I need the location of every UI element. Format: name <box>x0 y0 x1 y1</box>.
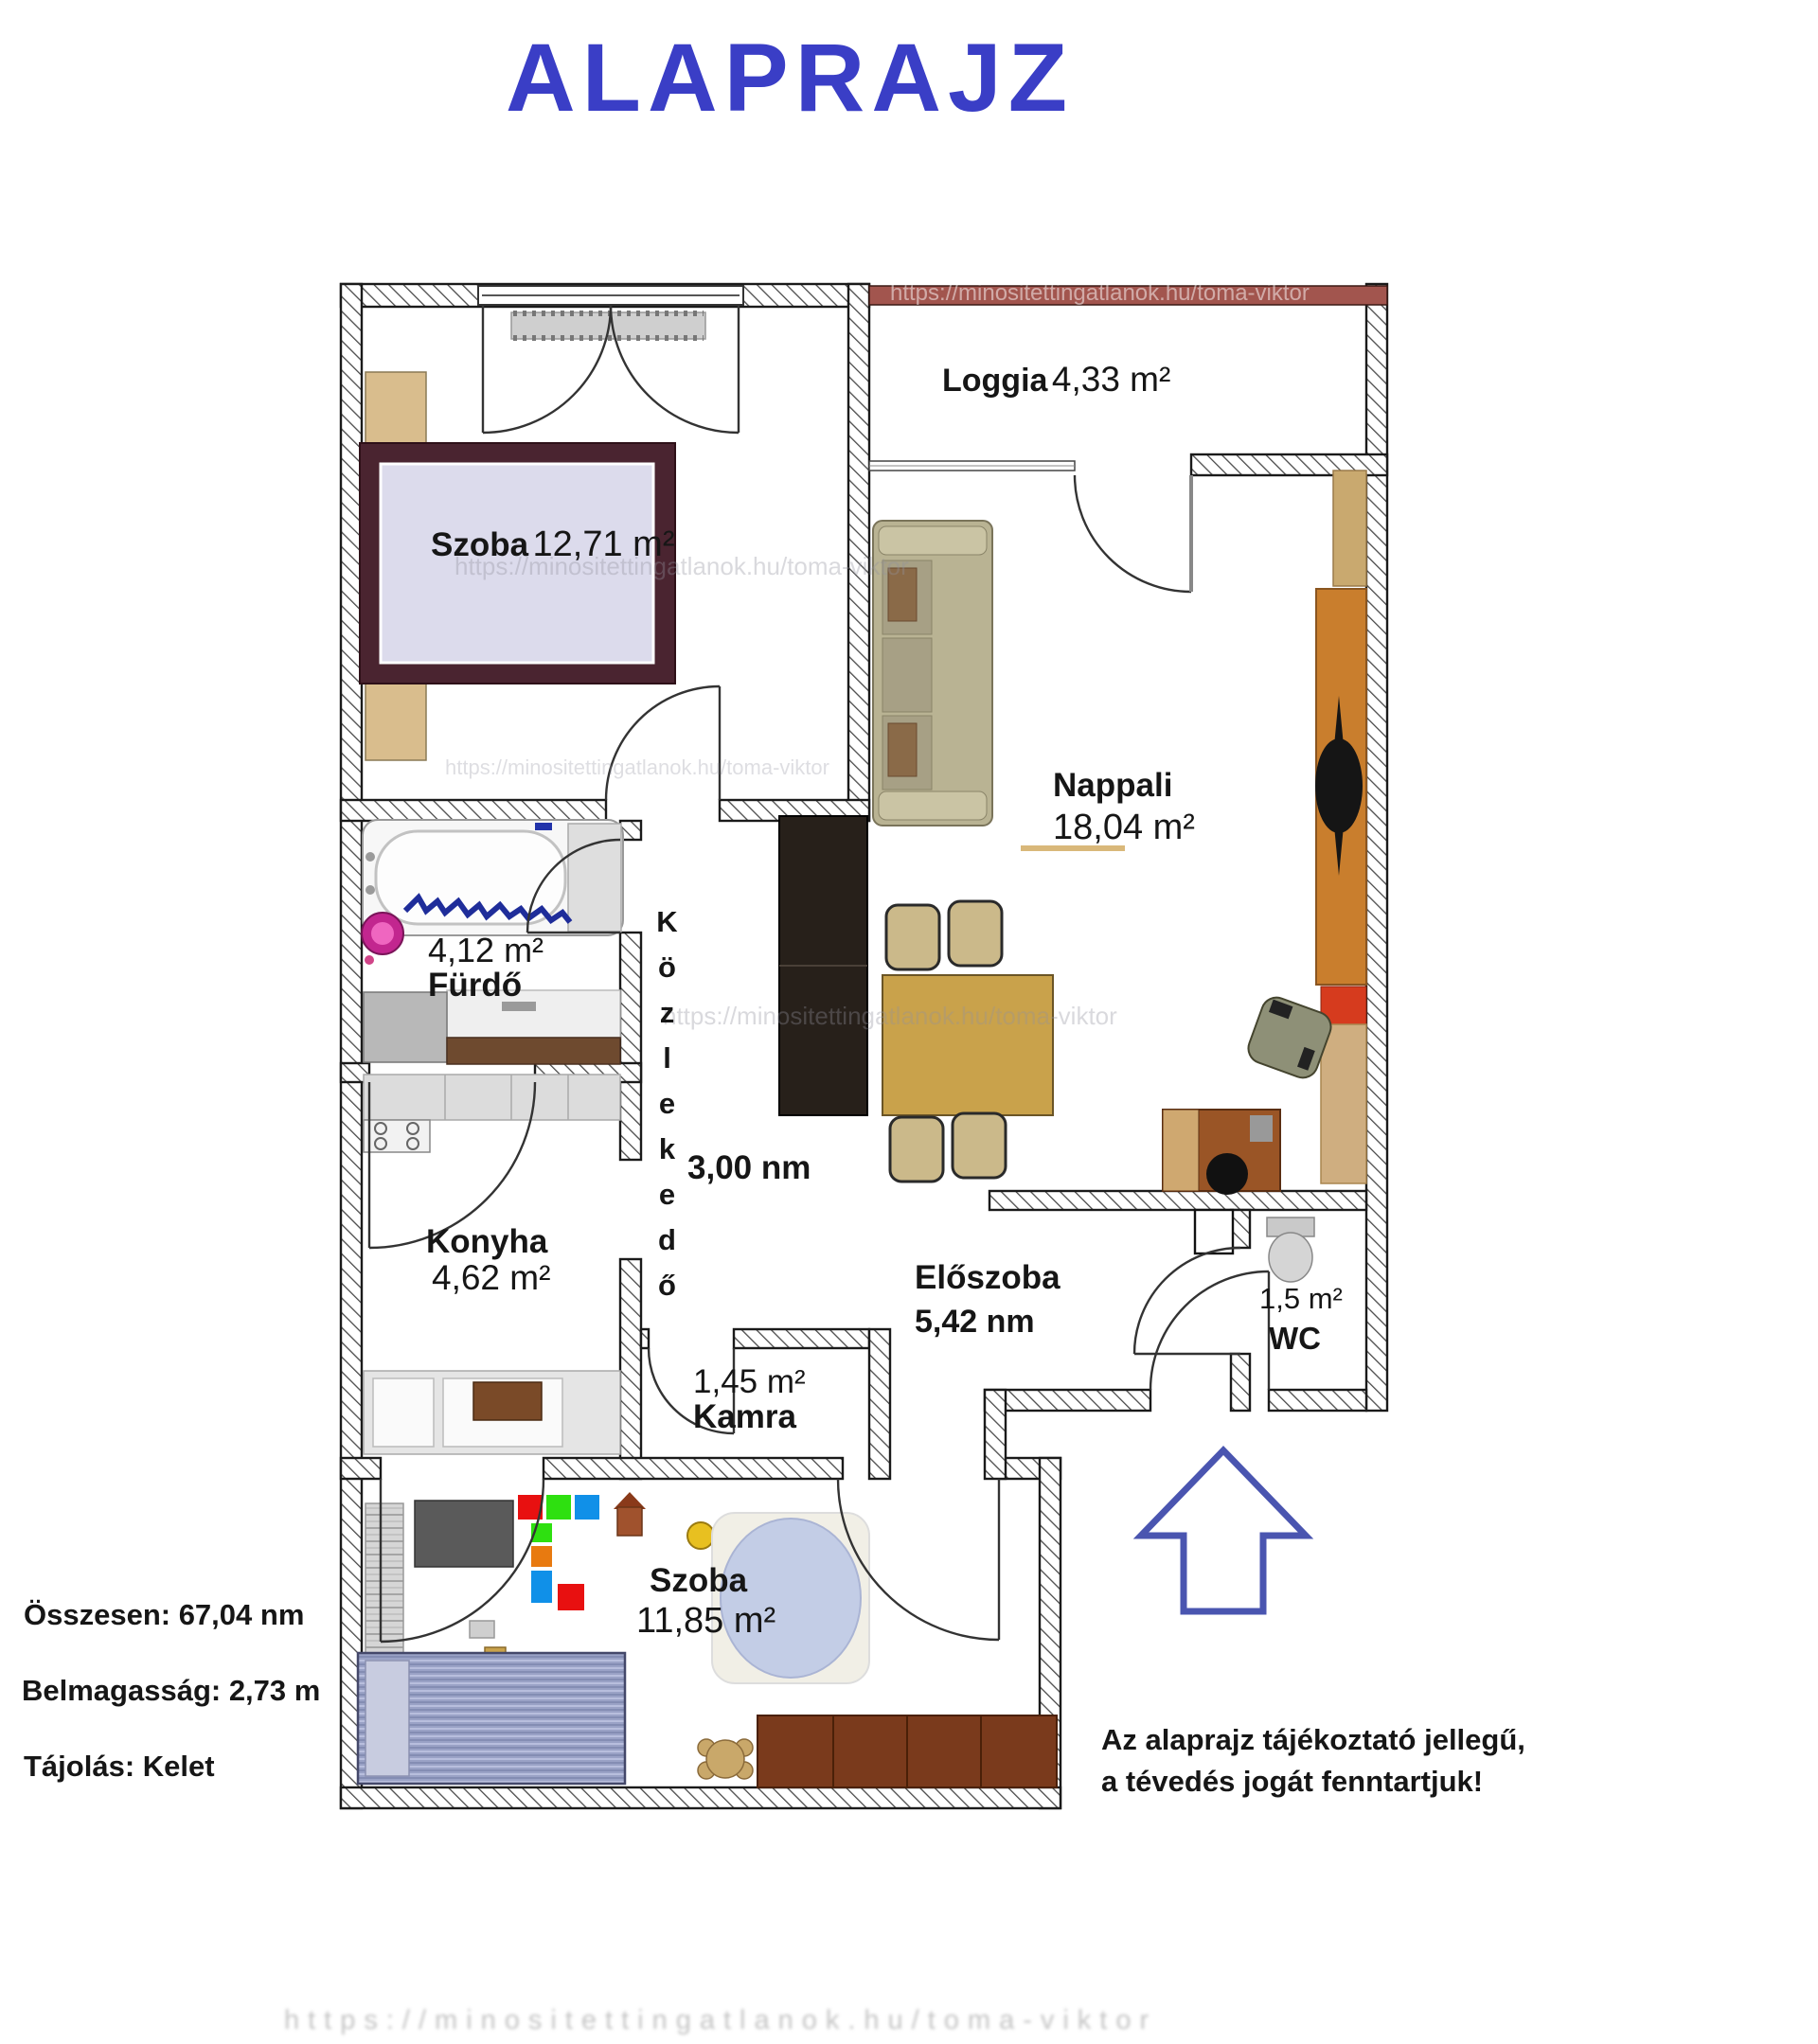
info-orientation: Tájolás: Kelet <box>24 1751 215 1783</box>
room-area: 5,42 nm <box>915 1306 1060 1340</box>
room-name: WC <box>1269 1323 1343 1356</box>
room-label-konyha: Konyha 4,62 m² <box>426 1225 550 1297</box>
room-label-szoba1: Szoba 12,71 m² <box>431 526 675 564</box>
tv-icon <box>1315 738 1363 833</box>
counter-front <box>447 1038 620 1064</box>
watermark: https://minositettingatlanok.hu/toma-vik… <box>284 2005 1157 2036</box>
room-name: Szoba <box>431 526 528 563</box>
room-label-kozlekedo: Közlekedő <box>650 905 684 1284</box>
loggia-window-wall <box>869 461 1075 471</box>
room-name: Szoba <box>650 1564 775 1599</box>
toy <box>687 1522 714 1549</box>
wall-niche <box>1195 1210 1233 1253</box>
room-area: 1,5 m² <box>1259 1284 1343 1315</box>
disclaimer-line1: Az alaprajz tájékoztató jellegű, <box>1101 1725 1525 1756</box>
watermark: https://minositettingatlanok.hu/toma-vik… <box>445 755 829 780</box>
dining-chair <box>890 1117 943 1182</box>
toilet-bowl <box>1269 1233 1312 1282</box>
watermark: https://minositettingatlanok.hu/toma-vik… <box>663 1002 1117 1031</box>
room-label-nappali: Nappali 18,04 m² <box>1053 769 1195 847</box>
room-label-wc: 1,5 m² WC <box>1259 1284 1343 1355</box>
office-chair <box>1206 1153 1248 1195</box>
room-area: 4,33 m² <box>1052 360 1170 399</box>
info-ceiling-height: Belmagasság: 2,73 m <box>22 1676 320 1707</box>
entrance-arrow-icon <box>1141 1450 1306 1611</box>
room-label-loggia: Loggia 4,33 m² <box>942 362 1170 399</box>
dining-chair <box>886 905 939 969</box>
room-area: 1,45 m² <box>693 1365 806 1400</box>
room-name: Loggia <box>942 363 1047 399</box>
desk-tray <box>1250 1115 1273 1142</box>
room-label-furdo: 4,12 m² Fürdő <box>428 933 544 1004</box>
sofa-pillow <box>888 723 917 776</box>
dining-chair <box>949 901 1002 966</box>
toy <box>470 1621 494 1638</box>
room-area: 11,85 m² <box>636 1603 775 1641</box>
disclaimer-line2: a tévedés jogát fenntartjuk! <box>1101 1767 1483 1798</box>
stool <box>698 1739 753 1779</box>
toy-blocks <box>517 1494 600 1611</box>
toy-house <box>617 1507 642 1536</box>
room-area-kozlekedo: 3,00 nm <box>687 1151 811 1186</box>
faucet <box>535 823 552 830</box>
wc-fixtures <box>1267 1218 1314 1282</box>
room-area: 4,62 m² <box>432 1260 550 1297</box>
tv-shelf <box>1333 471 1366 586</box>
cabinet <box>1321 1024 1366 1183</box>
hall-furniture <box>779 816 867 1115</box>
room-label-szoba2: Szoba 11,85 m² <box>636 1564 775 1641</box>
kitchen-counter <box>364 1075 620 1120</box>
info-total: Összesen: 67,04 nm <box>24 1600 304 1631</box>
room-area: 4,12 m² <box>428 933 544 969</box>
room-area: 12,71 m² <box>533 524 675 564</box>
wardrobe <box>365 680 426 760</box>
stove <box>364 1120 430 1152</box>
floor-plan-page: ALAPRAJZ <box>0 0 1818 2044</box>
room-area: 18,04 m² <box>1053 809 1195 847</box>
room-name: Konyha <box>426 1225 550 1260</box>
desk <box>1163 1110 1199 1191</box>
watermark: https://minositettingatlanok.hu/toma-vik… <box>890 280 1310 307</box>
room-name: Előszoba <box>915 1261 1060 1296</box>
bedroom-window <box>478 286 743 305</box>
kitchen-appliance <box>473 1382 542 1420</box>
pillow <box>365 1661 409 1776</box>
room-label-eloszoba: Előszoba 5,42 nm <box>915 1261 1060 1339</box>
room-name: Kamra <box>693 1400 806 1435</box>
dining-chair <box>953 1113 1006 1178</box>
kids-desk <box>415 1501 513 1567</box>
dining-table <box>882 975 1053 1115</box>
room-name: Nappali <box>1053 769 1195 804</box>
room-label-kamra: 1,45 m² Kamra <box>693 1365 806 1435</box>
room-name: Fürdő <box>428 969 544 1004</box>
